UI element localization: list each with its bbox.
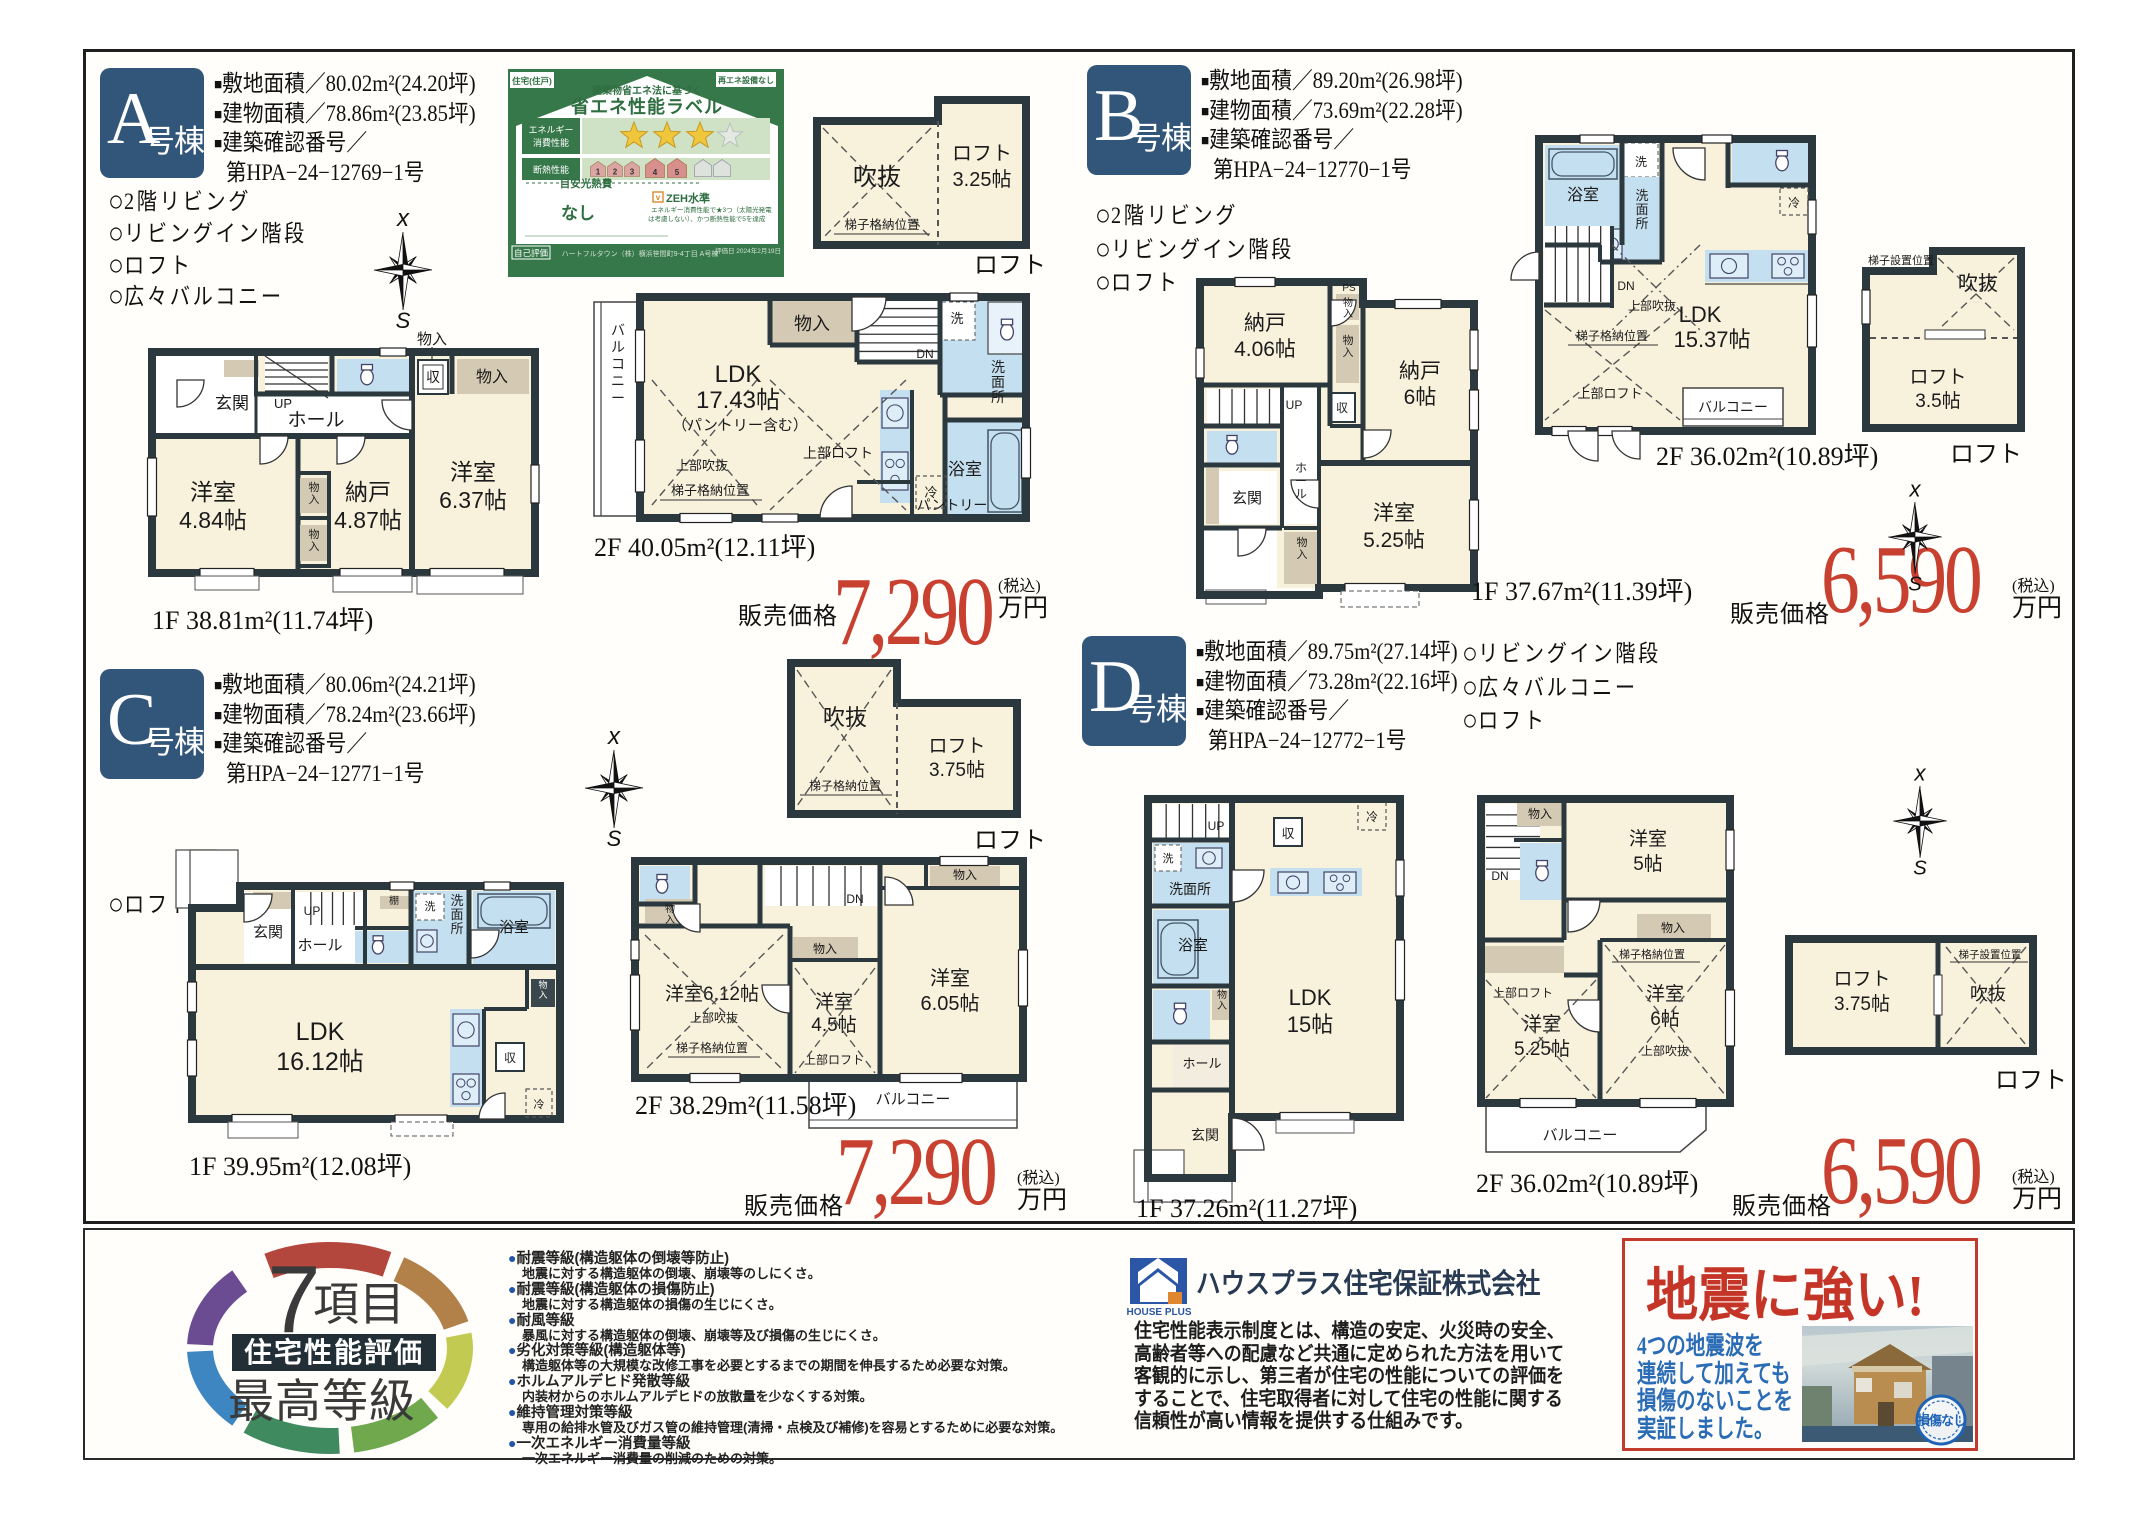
svg-text:5: 5 bbox=[675, 168, 680, 177]
svg-text:なし: なし bbox=[561, 204, 595, 223]
svg-text:4: 4 bbox=[653, 168, 658, 177]
svg-text:住宅(住戸): 住宅(住戸) bbox=[512, 76, 552, 86]
svg-text:断熱性能: 断熱性能 bbox=[533, 164, 569, 175]
svg-text:省エネ性能ラベル: 省エネ性能ラベル bbox=[570, 96, 723, 117]
svg-text:自己評価: 自己評価 bbox=[514, 248, 549, 258]
svg-text:ハートフルタウン（株）横浜笹間町9-4丁目 A号棟: ハートフルタウン（株）横浜笹間町9-4丁目 A号棟 bbox=[562, 249, 719, 258]
svg-text:消費性能: 消費性能 bbox=[533, 137, 569, 148]
svg-text:ZEH水準: ZEH水準 bbox=[666, 191, 710, 205]
svg-text:は考慮しない）、かつ断熱性能で5を達成: は考慮しない）、かつ断熱性能で5を達成 bbox=[648, 214, 766, 223]
svg-text:v: v bbox=[656, 193, 661, 202]
svg-text:再エネ設備なし: 再エネ設備なし bbox=[718, 75, 774, 85]
svg-text:建築物省エネ法に基づく: 建築物省エネ法に基づく bbox=[591, 84, 702, 97]
svg-text:エネルギー消費性能で★3つ（太陽光発電: エネルギー消費性能で★3つ（太陽光発電 bbox=[651, 205, 772, 214]
svg-text:目安光熱費: 目安光熱費 bbox=[560, 177, 613, 190]
svg-text:1: 1 bbox=[596, 168, 601, 177]
svg-text:エネルギー: エネルギー bbox=[528, 125, 573, 135]
svg-text:2: 2 bbox=[613, 168, 618, 177]
svg-text:評価日 2024年2月19日: 評価日 2024年2月19日 bbox=[715, 246, 781, 255]
svg-text:3: 3 bbox=[630, 168, 635, 177]
